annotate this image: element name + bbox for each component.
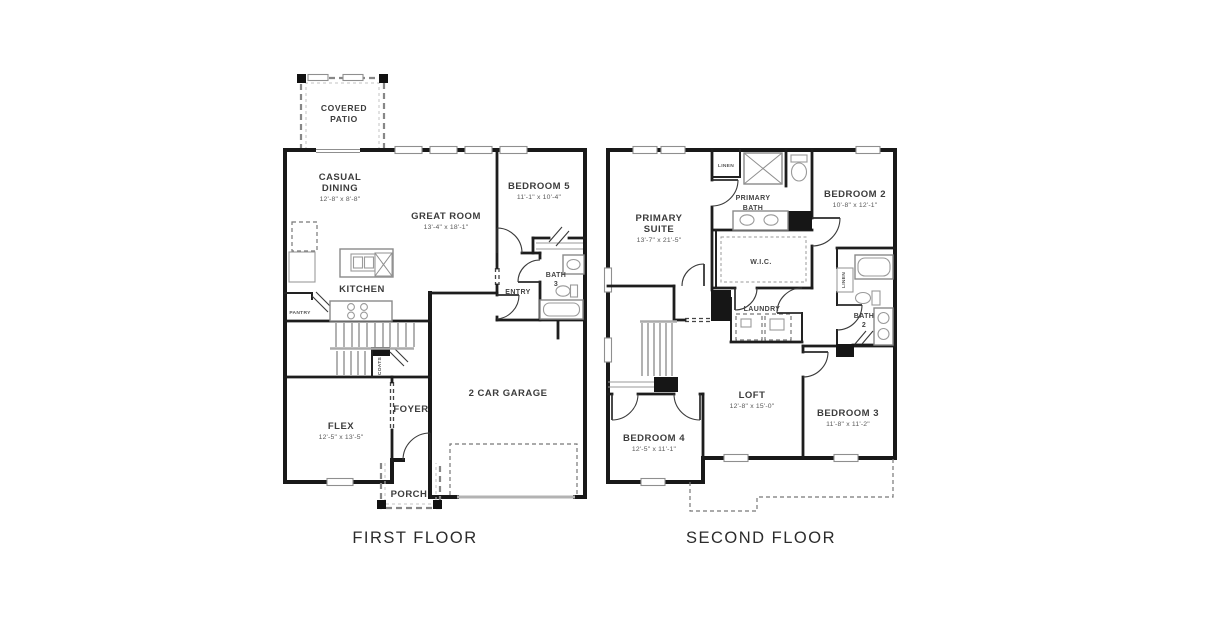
label-primary-bath: PRIMARY [736,195,771,202]
porch-outline [377,463,442,509]
dims-casual-dining: 12'-8" x 8'-8" [320,196,361,203]
dims-bedroom2: 10'-8" x 12'-1" [833,202,878,209]
first-floor-title: FIRST FLOOR [352,529,477,547]
label-flex: FLEX [328,421,354,432]
dims-great-room: 13'-4" x 18'-1" [424,224,469,231]
dims-loft: 12'-8" x 15'-0" [730,403,775,410]
dims-primary-suite: 13'-7" x 21'-5" [637,237,682,244]
first-floor-doors [403,228,540,460]
label-bath2-2: 2 [862,322,866,329]
label-kitchen: KITCHEN [339,284,385,295]
floorplan-drawing: COVERED PATIO CASUAL DINING 12'-8" x 8'-… [0,0,1222,632]
refrigerator [289,222,317,282]
label-porch: PORCH [391,489,428,500]
label-linen-bath: LINEN [718,163,734,169]
kitchen-island [340,249,393,277]
label-casual-dining: CASUAL [319,172,362,183]
label-great-room: GREAT ROOM [411,211,481,222]
label-entry: ENTRY [505,289,530,296]
label-casual-dining-2: DINING [322,183,358,194]
roofline-dashed [690,458,893,511]
label-covered-patio: COVERED [321,103,367,113]
label-laundry: LAUNDRY [744,306,781,313]
label-coats: COATS [377,356,383,375]
label-primary-suite-2: SUITE [644,224,674,235]
label-foyer: FOYER [393,404,428,415]
second-floor-title: SECOND FLOOR [686,529,836,547]
floorplan-canvas: COVERED PATIO CASUAL DINING 12'-8" x 8'-… [0,0,1222,632]
label-primary-suite: PRIMARY [636,213,683,224]
label-bedroom2: BEDROOM 2 [824,189,886,200]
label-pantry: PANTRY [289,310,311,316]
label-covered-patio-2: PATIO [330,114,358,124]
label-linen-hall: LINEN [841,272,847,288]
label-bath2: BATH [854,313,875,320]
label-loft: LOFT [739,390,766,401]
bath2-fixtures [855,255,893,345]
label-wic: W.I.C. [750,259,771,266]
garage-door-area [450,444,577,495]
laundry-fixtures [736,314,791,340]
label-garage: 2 CAR GARAGE [469,388,548,399]
first-floor-plan: COVERED PATIO CASUAL DINING 12'-8" x 8'-… [285,74,585,547]
second-floor-plan: PRIMARY SUITE 13'-7" x 21'-5" LINEN PRIM… [605,147,896,548]
label-bath3: BATH [546,272,567,279]
label-bedroom4: BEDROOM 4 [623,433,685,444]
label-bedroom3: BEDROOM 3 [817,408,879,419]
label-primary-bath-2: BATH [743,205,764,212]
label-bedroom5: BEDROOM 5 [508,181,570,192]
dims-bedroom3: 11'-8" x 11'-2" [826,421,870,428]
label-bath3-2: 3 [554,281,558,288]
dims-bedroom4: 12'-5" x 11'-1" [632,446,677,453]
dims-bedroom5: 11'-1" x 10'-4" [517,194,562,201]
kitchen-range-counter [330,301,392,321]
dims-flex: 12'-5" x 13'-5" [319,434,364,441]
